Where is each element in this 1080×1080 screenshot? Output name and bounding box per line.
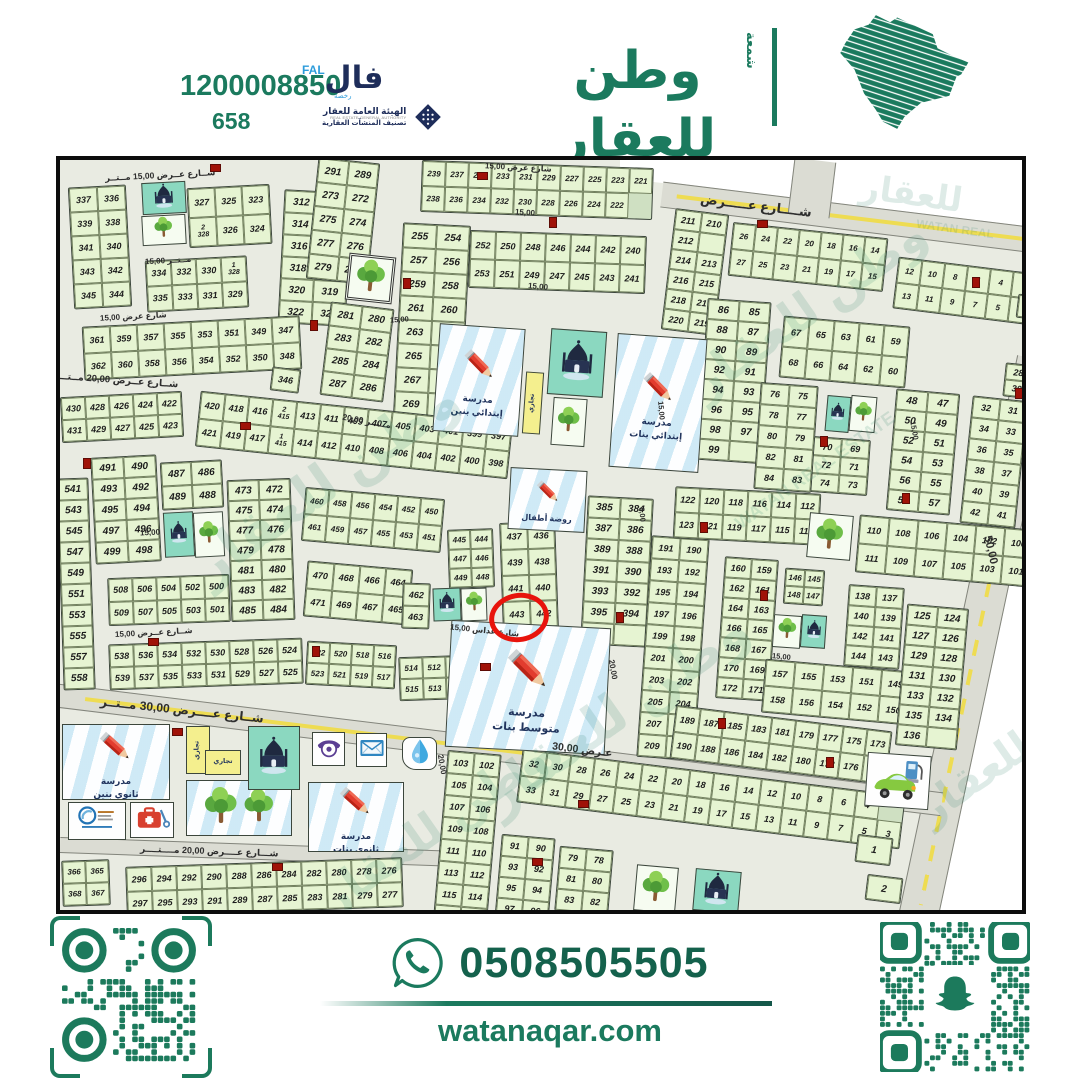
plot-cell: 66 — [805, 349, 833, 381]
plot-cell: 451 — [417, 524, 442, 552]
plot-cell: 530 — [205, 641, 230, 664]
red-mark — [480, 663, 491, 671]
plot-cell: 109 — [885, 546, 916, 576]
plot-cell: 477 — [229, 520, 261, 541]
plot-cell: 124 — [936, 607, 968, 630]
plot-cell: 333 — [172, 284, 198, 310]
plot-cell: 293 — [177, 889, 203, 914]
plot-cell: 557 — [63, 646, 94, 668]
plot-cell: 79 — [785, 427, 814, 450]
plot-cell: 190 — [671, 732, 698, 761]
plot-cell: 114 — [771, 492, 796, 518]
qr-code-left — [62, 928, 196, 1062]
plot-cell: 209 — [637, 734, 666, 758]
plot-cell: 453 — [394, 522, 419, 550]
plot-cell: 132 — [929, 687, 961, 710]
mosque-icon — [147, 182, 180, 214]
plot-cell: 323 — [241, 185, 269, 215]
plot-cell: 71 — [839, 457, 868, 477]
school-label: مدرسة متوسط بنات — [492, 704, 561, 737]
plot-cell: 471 — [304, 588, 332, 617]
plot-cell: 523 — [306, 663, 329, 685]
plot-cell: 444 — [470, 529, 493, 549]
plot-cell: 168 — [719, 637, 746, 659]
plot-cell: 81 — [557, 868, 585, 891]
plot-cell: 100 — [1003, 528, 1026, 558]
pencil-icon — [93, 724, 139, 775]
plot-cell: 12 — [759, 779, 786, 808]
plot-cell: 355 — [164, 322, 192, 349]
aid-block — [130, 802, 174, 838]
plot-cell: 51 — [923, 432, 956, 455]
tree-icon — [463, 588, 485, 621]
tree-icon — [811, 514, 850, 559]
plot-cell: 32 — [972, 397, 1001, 421]
plot-cell: 447 — [449, 549, 472, 569]
plot-cell: 281 — [327, 884, 353, 909]
plot-cell: 467 — [356, 593, 384, 622]
plot-cell: 491 — [91, 457, 124, 480]
saudi-map-logo — [788, 8, 1023, 136]
plot-cell: 395 — [582, 601, 615, 624]
plot-cell: 390 — [616, 561, 649, 584]
plot-cell: 493 — [92, 478, 125, 501]
plot-cell: 184 — [742, 741, 769, 770]
plot-map: 3373363393383413403433423453443273253232… — [56, 156, 1026, 914]
plot-cell: 228 — [536, 190, 560, 216]
plot-cell: 30 — [544, 753, 571, 782]
plot-cell: 250 — [495, 232, 521, 261]
plot-cell: 78 — [585, 849, 613, 872]
plot-cell: 528 — [229, 640, 254, 663]
plot-cell: 347 — [272, 316, 300, 343]
plot-cell: 350 — [246, 344, 274, 371]
red-mark — [240, 422, 251, 430]
plot-cell: 524 — [277, 639, 302, 662]
plot-cell: 156 — [791, 688, 822, 716]
plot-cell: 73 — [838, 475, 867, 495]
plot-cell: 54 — [890, 449, 923, 472]
plot-cell: 431 — [62, 419, 87, 442]
plot-cell: 182 — [766, 744, 793, 773]
plot-cell: 87 — [737, 321, 769, 343]
plot-cell: 549 — [60, 562, 91, 584]
plot-cell: 167 — [745, 639, 772, 661]
plot-cell: 135 — [898, 704, 930, 727]
plot-cell: 404 — [411, 441, 438, 470]
plot-cell: 25 — [613, 787, 640, 816]
plot-cell: 276 — [376, 858, 402, 883]
plot-cell: 108 — [887, 518, 918, 548]
plot-cell: 495 — [93, 499, 126, 522]
plot-cell: 142 — [846, 625, 874, 647]
plot-block: 76757877807982818483 — [753, 382, 818, 493]
plot-cell: 57 — [918, 492, 951, 515]
plot-cell: 285 — [277, 886, 303, 911]
plot-cell: 384 — [620, 498, 653, 521]
plot-cell: 331 — [197, 283, 223, 309]
plot-cell: 553 — [62, 604, 93, 626]
plot-cell: 341 — [71, 235, 100, 260]
plot-cell: 109 — [441, 817, 469, 841]
water-block — [402, 737, 437, 770]
plot-cell: 74 — [810, 473, 839, 493]
plot-block: 5385365345325305285265245395375355335315… — [108, 638, 303, 691]
fal-logo-en: FAL — [302, 63, 325, 77]
red-mark — [718, 718, 726, 729]
plot-cell: 289 — [227, 887, 253, 912]
plot-cell: 357 — [137, 323, 165, 350]
plot-cell: 267 — [395, 367, 429, 393]
plot-cell: 424 — [133, 393, 158, 416]
plot-cell: 98 — [699, 419, 731, 441]
plot-cell: 8 — [942, 263, 968, 291]
plot-cell: 521 — [328, 664, 351, 686]
first-aid-icon — [134, 803, 170, 838]
plot-cell: 494 — [125, 497, 158, 520]
plot-cell: 80 — [583, 870, 611, 893]
plot-cell: 507 — [133, 600, 158, 624]
plot-cell: 36 — [967, 438, 996, 462]
plot-cell: 78 — [759, 404, 788, 427]
plot-cell: 77 — [787, 406, 816, 429]
plot-cell: 20 — [797, 230, 822, 258]
plot-cell: 111 — [856, 543, 887, 573]
plot-cell: 116 — [459, 907, 487, 914]
tree-icon — [851, 396, 875, 432]
qr-bracket-bl — [50, 1048, 80, 1078]
plot-cell: 181 — [769, 718, 796, 747]
plot-cell: 91 — [501, 835, 529, 858]
plot-cell: 345 — [74, 283, 103, 308]
plot-cell: 272 — [344, 185, 376, 212]
tree-icon — [196, 513, 222, 556]
plot-cell: 162 — [723, 577, 750, 599]
plot-block: 323134333635383740394241 — [959, 395, 1026, 528]
plot-cell: 485 — [232, 600, 264, 621]
plot-cell: 388 — [618, 540, 651, 563]
plot-cell: 526 — [253, 640, 278, 663]
plot-cell: 126 — [935, 627, 967, 650]
plot-cell: 117 — [433, 904, 461, 914]
plot-cell: 481 — [230, 560, 262, 581]
plot-block: 366365368367 — [61, 859, 111, 907]
plot-cell: 18 — [819, 232, 844, 260]
plot-cell: 17 — [838, 260, 863, 288]
plot-cell: 93 — [499, 856, 527, 879]
plot-cell: 474 — [259, 499, 291, 520]
plot-cell: 245 — [569, 262, 595, 291]
plot-cell: 421 — [196, 419, 223, 448]
plot-cell: 53 — [921, 452, 954, 475]
qr-code-snapchat — [880, 922, 1030, 1072]
plot-cell: 189 — [674, 706, 701, 735]
mosqueBig-block — [248, 726, 300, 790]
plot-cell: 220 — [662, 309, 690, 332]
plot-cell: 257 — [402, 247, 436, 273]
plot-cell: 242 — [595, 235, 621, 264]
plot-cell: 14 — [735, 776, 762, 805]
plot-cell: 130 — [931, 667, 963, 690]
plot-cell: 85 — [738, 301, 770, 323]
plot-cell: 111 — [439, 839, 467, 863]
plot-cell: 426 — [109, 394, 134, 417]
plot-block: 122120118116114112123121119117115113 — [673, 486, 822, 546]
footer-divider — [320, 1001, 772, 1006]
plot-cell: 291 — [317, 158, 349, 185]
plot-cell: 15 — [732, 802, 759, 831]
plot-cell: 292 — [176, 865, 202, 890]
rega-diamond-icon — [411, 100, 445, 134]
plot-map-canvas: 3373363393383413403433423453443273253232… — [60, 160, 1022, 910]
plot-cell: 487 — [161, 462, 192, 487]
plot-cell: 246 — [545, 234, 571, 263]
plot-cell: 131 — [901, 664, 933, 687]
plot-cell: 278 — [351, 859, 377, 884]
plot-cell: 1 415 — [268, 426, 295, 455]
plot-cell: 479 — [230, 540, 262, 561]
plot-cell: 104 — [945, 523, 976, 553]
plot-cell: 13 — [755, 805, 782, 834]
tree-block — [550, 397, 587, 447]
plot-block: 346 — [270, 366, 302, 393]
plot-cell: 324 — [243, 214, 271, 244]
plot-cell: 82 — [581, 891, 609, 914]
plot-cell: 448 — [471, 567, 494, 587]
red-mark — [700, 522, 708, 533]
plot-cell: 148 — [784, 586, 804, 604]
tree-icon — [350, 255, 392, 302]
plot-block: 4734724754744774764794784814804834824854… — [227, 478, 296, 622]
plot-cell: 346 — [271, 367, 300, 392]
plot-cell: 102 — [473, 753, 501, 777]
plot-cell: 172 — [716, 677, 743, 699]
plot-cell: 287 — [252, 887, 278, 912]
plot-cell: 501 — [205, 598, 230, 622]
red-mark — [826, 757, 834, 768]
whatsapp-number: 0508505505 — [459, 939, 708, 988]
plot-cell: 473 — [228, 480, 260, 501]
plot-cell: 110 — [465, 841, 493, 865]
plot-cell: 368 — [63, 883, 87, 906]
plot-cell: 265 — [397, 343, 431, 369]
plot-cell: 105 — [943, 551, 974, 581]
mosque-icon — [803, 615, 823, 648]
plot-cell: 194 — [676, 582, 705, 606]
plot-cell: 389 — [586, 538, 619, 561]
plot-cell: 348 — [273, 342, 301, 369]
street-label: 15,00 — [656, 401, 667, 420]
tree-block — [848, 395, 877, 433]
plot-cell: 56 — [889, 469, 922, 492]
plot-cell: 33 — [996, 420, 1025, 444]
street-label: 8,00 — [637, 507, 647, 522]
plot-cell: 226 — [559, 191, 583, 217]
plot-cell: 337 — [69, 187, 98, 212]
plot-cell: 147 — [803, 587, 823, 605]
plot-cell: 280 — [326, 860, 352, 885]
plot-cell: 504 — [156, 577, 181, 601]
plot-cell: 410 — [339, 434, 366, 463]
plot-block: 460458456454452450461459457455453451 — [301, 487, 445, 553]
plot-cell: 223 — [606, 167, 630, 193]
plot-cell: 412 — [315, 431, 342, 460]
plot-cell: 274 — [342, 209, 374, 236]
plot-cell: 10 — [782, 782, 809, 811]
plot-cell: 551 — [61, 583, 92, 605]
whatsapp-contact: 0508505505 — [300, 936, 800, 990]
plot-cell: 248 — [520, 233, 546, 262]
plot-block: 1 — [1016, 294, 1026, 321]
plot-cell: 238 — [421, 186, 445, 212]
plot-cell: 535 — [158, 665, 183, 688]
plot-cell: 352 — [219, 345, 247, 372]
plot-cell: 224 — [582, 192, 606, 218]
plot-cell: 175 — [841, 727, 868, 756]
plot-cell: 509 — [109, 601, 134, 625]
plot-block: 430428426424422431429427425423 — [60, 391, 184, 443]
plot-block: 487486489488 — [160, 459, 224, 510]
street-label: 15,00 — [140, 527, 160, 537]
plot-cell: 402 — [435, 444, 462, 473]
plot-cell: 5 — [985, 294, 1011, 322]
plot-cell: 221 — [629, 168, 653, 194]
fal-logo: FALفال رخصة — [302, 62, 384, 100]
telephone-icon — [316, 734, 342, 765]
commercial-label: تجاري — [528, 393, 538, 413]
plot-cell: 146 — [785, 569, 805, 587]
plot-cell: 129 — [903, 644, 935, 667]
red-mark — [148, 638, 159, 646]
plot-cell: 196 — [675, 604, 704, 628]
plot-cell: 151 — [851, 667, 882, 695]
plot-cell: 237 — [445, 162, 469, 188]
street-label: 20,00 — [607, 659, 619, 680]
school-block: مدرسة إبتدائي بنين — [432, 323, 525, 437]
street-label: 15,00 — [390, 314, 409, 324]
plot-cell: 418 — [223, 394, 250, 423]
plot-cell: 456 — [350, 492, 375, 520]
plot-cell: 39 — [990, 483, 1019, 507]
commercial-block: تجاري — [522, 371, 544, 434]
plot-cell: 1 — [856, 835, 893, 865]
plot-cell: 251 — [494, 260, 520, 289]
plot-cell: 164 — [722, 597, 749, 619]
plot-cell: 157 — [764, 660, 795, 688]
plot-cell: 514 — [399, 657, 423, 679]
plot-cell: 533 — [182, 664, 207, 687]
plot-block: 67656361596866646260 — [779, 316, 911, 389]
plot-cell: 110 — [858, 516, 889, 546]
plot-cell: 291 — [202, 888, 228, 913]
plot-cell: 445 — [448, 530, 471, 550]
plot-cell: 386 — [619, 519, 652, 542]
plot-cell: 38 — [965, 459, 994, 483]
plot-cell: 256 — [435, 249, 469, 275]
plot-cell: 277 — [377, 882, 403, 907]
plot-cell: 33 — [517, 776, 544, 805]
plot-cell: 83 — [555, 889, 583, 912]
plot-cell: 114 — [461, 885, 489, 909]
plot-cell: 97 — [495, 898, 523, 914]
plot-cell: 490 — [123, 455, 156, 478]
plot-cell: 254 — [436, 225, 470, 251]
mosque-icon — [255, 730, 292, 786]
red-mark — [549, 217, 557, 228]
school-block: مدرسة ثانوي بنات — [308, 782, 404, 852]
tree-block — [806, 512, 854, 561]
brand-name-arabic: وطن للعقار — [505, 38, 770, 173]
plot-cell: 22 — [640, 764, 667, 793]
mosque-icon — [436, 588, 457, 620]
plot-cell: 101 — [1000, 556, 1026, 586]
plot-cell: 532 — [181, 642, 206, 665]
plot-cell: 119 — [722, 515, 747, 541]
plot-cell: 342 — [101, 258, 130, 283]
tree-icon — [554, 399, 584, 445]
plot-cell: 430 — [61, 397, 86, 420]
plot-cell: 63 — [832, 321, 860, 353]
plot-cell: 117 — [746, 516, 771, 542]
plot-cell: 515 — [400, 678, 424, 700]
whatsapp-icon — [391, 936, 445, 990]
plot-cell: 480 — [261, 559, 293, 580]
plot-cell: 503 — [181, 599, 206, 623]
mosque-block — [547, 328, 607, 398]
plot-cell: 289 — [347, 161, 379, 188]
plot-cell: 236 — [444, 187, 468, 213]
school-block: روضة أطفال — [507, 467, 587, 533]
mosque-icon — [828, 396, 848, 431]
plot-cell: 11 — [779, 808, 806, 837]
commercial-block: تجاري — [205, 750, 241, 775]
plot-cell: 349 — [245, 318, 273, 345]
plot-cell: 454 — [373, 494, 398, 522]
plot-cell: 420 — [199, 392, 226, 421]
plot-cell: 476 — [260, 519, 292, 540]
gas-block — [864, 752, 932, 810]
plot-cell: 502 — [180, 576, 205, 600]
plot-cell: 107 — [914, 548, 945, 578]
plot-cell: 11 — [916, 285, 942, 313]
pencil-icon — [333, 782, 379, 830]
plot-cell: 199 — [645, 624, 674, 648]
mail-block — [356, 733, 387, 767]
plot-cell: 446 — [471, 548, 494, 568]
plot-cell: 429 — [86, 418, 111, 441]
brand-divider-bar — [772, 28, 777, 126]
mosque-icon — [555, 333, 599, 393]
plot-cell: 2 — [866, 875, 903, 903]
plot-cell: 356 — [165, 348, 193, 375]
plot-block: 484750495251545356555857 — [886, 388, 960, 515]
plot-cell: 55 — [920, 472, 953, 495]
plot-cell: 25 — [751, 251, 776, 279]
mosque-block — [432, 588, 461, 622]
plot-cell: 423 — [158, 414, 183, 437]
plot-cell: 367 — [86, 882, 110, 905]
plot-cell: 295 — [152, 890, 178, 914]
plot-cell: 253 — [469, 259, 495, 288]
plot-cell: 296 — [126, 867, 152, 892]
plot-cell: 457 — [348, 518, 373, 546]
plot-block: 3273253232 328326324 — [186, 184, 272, 248]
plot-block: 508506504502500509507505503501 — [107, 574, 231, 626]
rega-line3: تصنيف المنشآت العقارية — [322, 120, 406, 128]
plot-cell: 463 — [402, 606, 429, 629]
plot-cell: 516 — [373, 645, 396, 667]
plot-cell: 222 — [605, 192, 629, 218]
